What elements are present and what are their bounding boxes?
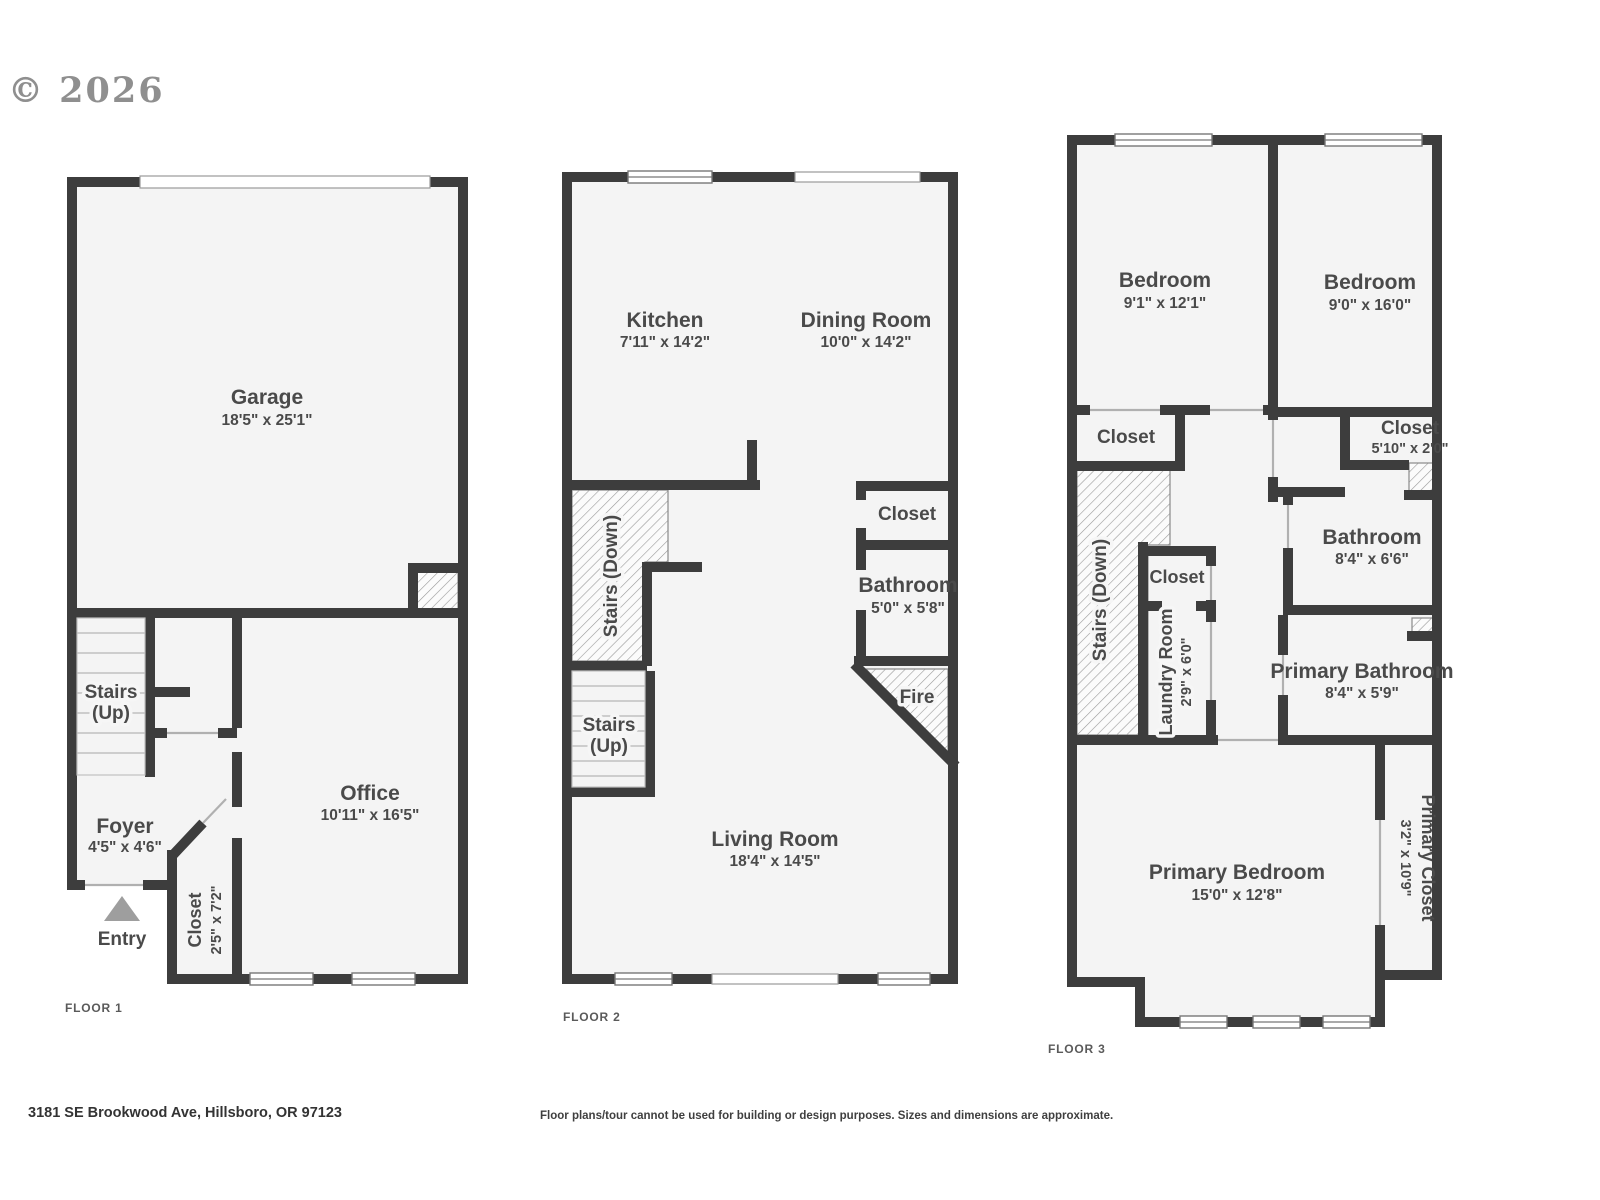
room-label-primary-bathroom: Primary Bathroom — [1270, 660, 1453, 683]
room-dims-bathroom-f3: 8'4" x 6'6" — [1335, 551, 1409, 568]
room-label-foyer: Foyer — [96, 815, 153, 838]
room-label-office: Office — [340, 782, 400, 805]
room-dims-bedroom-2: 9'0" x 16'0" — [1329, 297, 1411, 314]
floor3-label: FLOOR 3 — [1048, 1042, 1106, 1056]
copyright-watermark: © 2026 — [8, 70, 165, 111]
room-dims-foyer: 4'5" x 4'6" — [88, 839, 162, 856]
room-label-stairs-down-f2: Stairs (Down) — [601, 515, 622, 637]
room-dims-primary-bathroom: 8'4" x 5'9" — [1325, 685, 1399, 702]
room-label-stairs-up-f2-2: (Up) — [590, 736, 628, 757]
room-label-stairs-up-2: (Up) — [92, 703, 130, 724]
room-label-bathroom-f3: Bathroom — [1322, 526, 1421, 549]
room-label-closet-mid-f3: Closet — [1149, 567, 1204, 587]
room-label-bathroom-f2: Bathroom — [858, 574, 957, 597]
room-dims-dining: 10'0" x 14'2" — [820, 334, 911, 351]
floor2-label: FLOOR 2 — [563, 1010, 621, 1024]
floorplan-canvas: © 2026 — [0, 0, 1600, 1200]
floor3-plan: Bedroom 9'1" x 12'1" Bedroom 9'0" x 16'0… — [1048, 134, 1454, 1056]
room-label-living: Living Room — [711, 828, 838, 851]
room-label-stairs-up-f2-1: Stairs — [583, 715, 636, 736]
room-label-dining: Dining Room — [801, 309, 932, 332]
room-label-closet-left-f3: Closet — [1097, 427, 1156, 448]
room-label-stairs-up-1: Stairs — [85, 682, 138, 703]
floor1-plan: Garage 18'5" x 25'1" Stairs (Up) Foyer 4… — [65, 176, 463, 1015]
room-dims-laundry: 2'9" x 6'0" — [1179, 637, 1195, 706]
room-dims-kitchen: 7'11" x 14'2" — [620, 334, 710, 351]
room-label-closet-f2: Closet — [878, 504, 937, 525]
room-label-garage: Garage — [231, 386, 303, 409]
entry-label: Entry — [98, 929, 147, 950]
room-label-laundry: Laundry Room — [1156, 608, 1176, 735]
room-label-closet-1: Closet — [185, 892, 205, 947]
room-label-bedroom-2: Bedroom — [1324, 271, 1416, 294]
room-dims-garage: 18'5" x 25'1" — [221, 412, 312, 429]
floor2-plan: Kitchen 7'11" x 14'2" Dining Room 10'0" … — [562, 171, 958, 1024]
property-address: 3181 SE Brookwood Ave, Hillsboro, OR 971… — [28, 1105, 342, 1121]
room-dims-closet-1: 2'5" x 7'2" — [209, 885, 225, 954]
room-dims-living: 18'4" x 14'5" — [729, 853, 820, 870]
room-dims-primary-closet: 3'2" x 10'9" — [1397, 819, 1413, 896]
room-dims-bathroom-f2: 5'0" x 5'8" — [871, 600, 945, 617]
room-label-stairs-down-f3: Stairs (Down) — [1090, 539, 1111, 661]
room-label-bedroom-1: Bedroom — [1119, 269, 1211, 292]
room-dims-bedroom-1: 9'1" x 12'1" — [1124, 295, 1206, 312]
floor1-footprint — [72, 182, 463, 979]
disclaimer-text: Floor plans/tour cannot be used for buil… — [540, 1110, 1113, 1122]
room-label-kitchen: Kitchen — [626, 309, 703, 332]
room-label-primary-bedroom: Primary Bedroom — [1149, 861, 1325, 884]
room-label-primary-closet: Primary Closet — [1418, 794, 1438, 921]
entry-arrow-icon — [104, 896, 140, 921]
footer: 3181 SE Brookwood Ave, Hillsboro, OR 971… — [28, 1105, 1113, 1122]
room-dims-office: 10'11" x 16'5" — [321, 807, 420, 824]
room-dims-closet-right-f3: 5'10" x 2'0" — [1371, 441, 1448, 457]
floor1-garage-door — [140, 176, 430, 188]
floor1-label: FLOOR 1 — [65, 1001, 123, 1015]
room-label-closet-right-f3: Closet — [1381, 418, 1440, 439]
floorplan-page: © 2026 — [0, 0, 1600, 1200]
room-dims-primary-bedroom: 15'0" x 12'8" — [1191, 887, 1282, 904]
room-label-fire: Fire — [900, 687, 935, 708]
floor1-chimney-hatch — [417, 572, 458, 609]
